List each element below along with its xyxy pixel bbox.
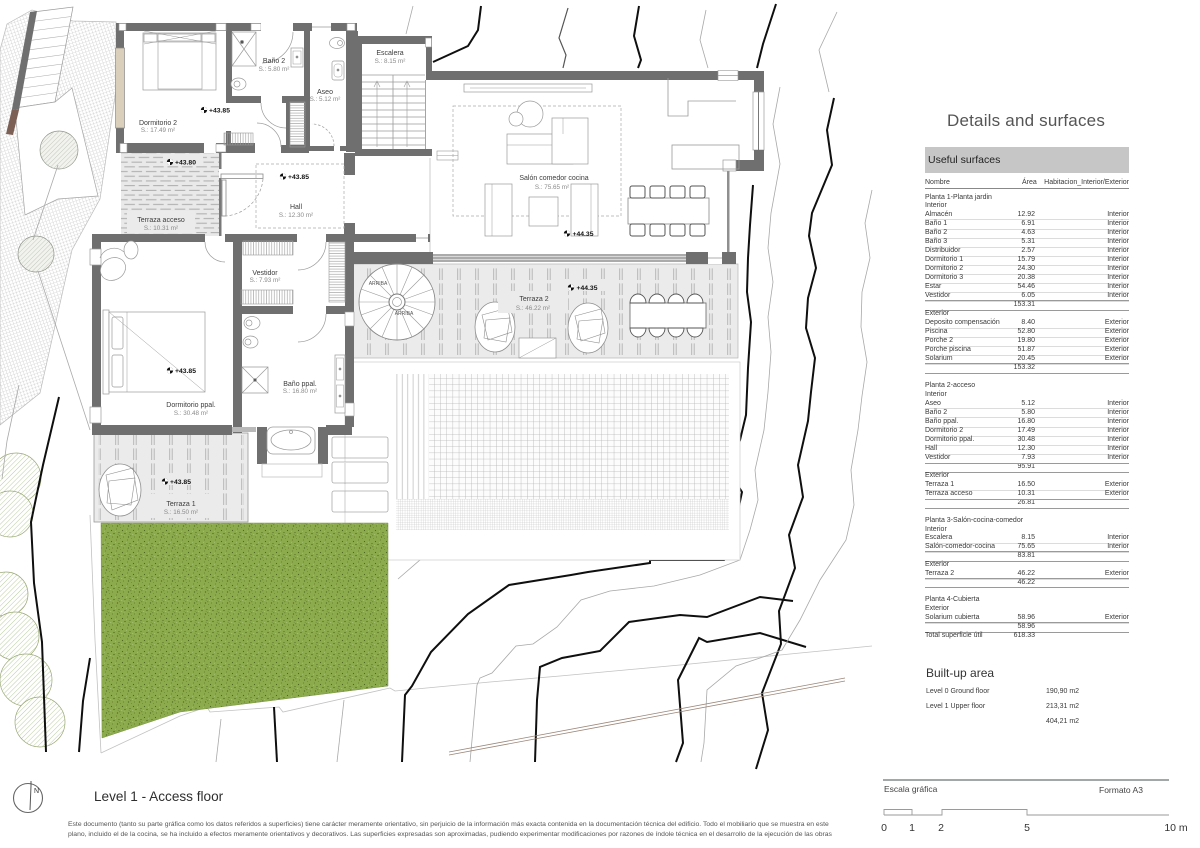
svg-text:+43.80: +43.80 bbox=[175, 160, 196, 167]
svg-text:+44.35: +44.35 bbox=[577, 285, 598, 292]
svg-text:S.: 30.48 m²: S.: 30.48 m² bbox=[174, 410, 208, 417]
svg-text:+43.85: +43.85 bbox=[209, 108, 230, 115]
svg-text:Hall: Hall bbox=[290, 204, 303, 211]
svg-text:S.: 75.65 m²: S.: 75.65 m² bbox=[535, 184, 569, 191]
svg-text:Escalera: Escalera bbox=[376, 50, 403, 57]
svg-text:Terraza 2: Terraza 2 bbox=[519, 296, 548, 303]
svg-text:+43.85: +43.85 bbox=[288, 174, 309, 181]
svg-text:0: 0 bbox=[881, 822, 887, 834]
svg-text:S.: 46.22 m²: S.: 46.22 m² bbox=[516, 305, 550, 312]
svg-text:ARRIBA: ARRIBA bbox=[369, 281, 388, 287]
svg-text:S.: 12.30 m²: S.: 12.30 m² bbox=[279, 212, 313, 219]
svg-text:Salón comedor cocina: Salón comedor cocina bbox=[519, 175, 588, 182]
svg-text:ARRIBA: ARRIBA bbox=[395, 311, 414, 317]
svg-text:+43.85: +43.85 bbox=[170, 479, 191, 486]
svg-text:2: 2 bbox=[938, 822, 944, 834]
svg-text:Dormitorio ppal.: Dormitorio ppal. bbox=[166, 402, 215, 409]
svg-text:S.: 7.93 m²: S.: 7.93 m² bbox=[250, 277, 281, 284]
svg-text:1: 1 bbox=[909, 822, 915, 834]
svg-text:Baño 2: Baño 2 bbox=[263, 58, 285, 65]
svg-text:Baño ppal.: Baño ppal. bbox=[283, 381, 317, 388]
svg-text:S.: 8.15 m²: S.: 8.15 m² bbox=[375, 58, 406, 65]
svg-text:Terraza acceso: Terraza acceso bbox=[137, 217, 185, 224]
svg-text:N: N bbox=[34, 788, 39, 795]
svg-text:S.: 5.12 m²: S.: 5.12 m² bbox=[310, 96, 341, 103]
svg-text:S.: 5.80 m²: S.: 5.80 m² bbox=[259, 66, 290, 73]
svg-text:+43.85: +43.85 bbox=[175, 368, 196, 375]
svg-text:S.: 16.50 m²: S.: 16.50 m² bbox=[164, 509, 198, 516]
svg-text:S.: 10.31 m²: S.: 10.31 m² bbox=[144, 225, 178, 232]
svg-text:+44.35: +44.35 bbox=[573, 231, 594, 238]
svg-text:Vestidor: Vestidor bbox=[252, 270, 278, 277]
svg-text:S.: 17.49 m²: S.: 17.49 m² bbox=[141, 127, 175, 134]
svg-text:Terraza 1: Terraza 1 bbox=[166, 501, 195, 508]
svg-text:Dormitorio 2: Dormitorio 2 bbox=[139, 120, 177, 127]
svg-text:10 m: 10 m bbox=[1164, 822, 1188, 834]
svg-text:Aseo: Aseo bbox=[317, 89, 333, 96]
svg-text:5: 5 bbox=[1024, 822, 1030, 834]
svg-text:S.: 16.80 m²: S.: 16.80 m² bbox=[283, 388, 317, 395]
